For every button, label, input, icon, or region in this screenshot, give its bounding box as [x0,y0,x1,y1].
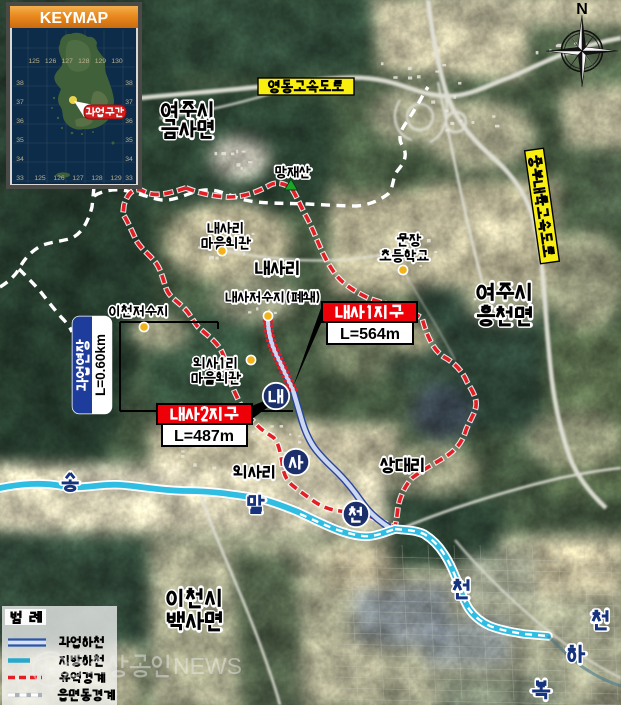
svg-text:125: 125 [28,58,40,65]
svg-text:129: 129 [110,175,122,182]
svg-text:37: 37 [125,99,133,106]
svg-text:36: 36 [125,118,133,125]
svg-text:34: 34 [16,156,24,163]
svg-text:33: 33 [16,175,24,182]
svg-text:127: 127 [72,175,84,182]
svg-text:125: 125 [34,175,46,182]
svg-text:34: 34 [125,156,133,163]
svg-text:128: 128 [78,58,90,65]
svg-text:37: 37 [16,99,24,106]
svg-text:38: 38 [125,80,133,87]
svg-text:130: 130 [111,58,123,65]
svg-text:NEWS: NEWS [173,653,242,679]
svg-text:128: 128 [91,175,103,182]
svg-text:38: 38 [16,80,24,87]
svg-text:L=0.60km: L=0.60km [93,334,108,396]
svg-text:KEYMAP: KEYMAP [40,10,109,27]
svg-text:JSN: JSN [35,662,65,679]
svg-text:35: 35 [125,137,133,144]
svg-text:126: 126 [45,58,57,65]
svg-text:33: 33 [125,175,133,182]
svg-text:L=487m: L=487m [174,428,234,445]
svg-text:36: 36 [16,118,24,125]
svg-text:129: 129 [95,58,107,65]
svg-text:126: 126 [53,175,65,182]
svg-text:L=564m: L=564m [340,326,400,343]
svg-text:35: 35 [16,137,24,144]
svg-text:127: 127 [62,58,74,65]
